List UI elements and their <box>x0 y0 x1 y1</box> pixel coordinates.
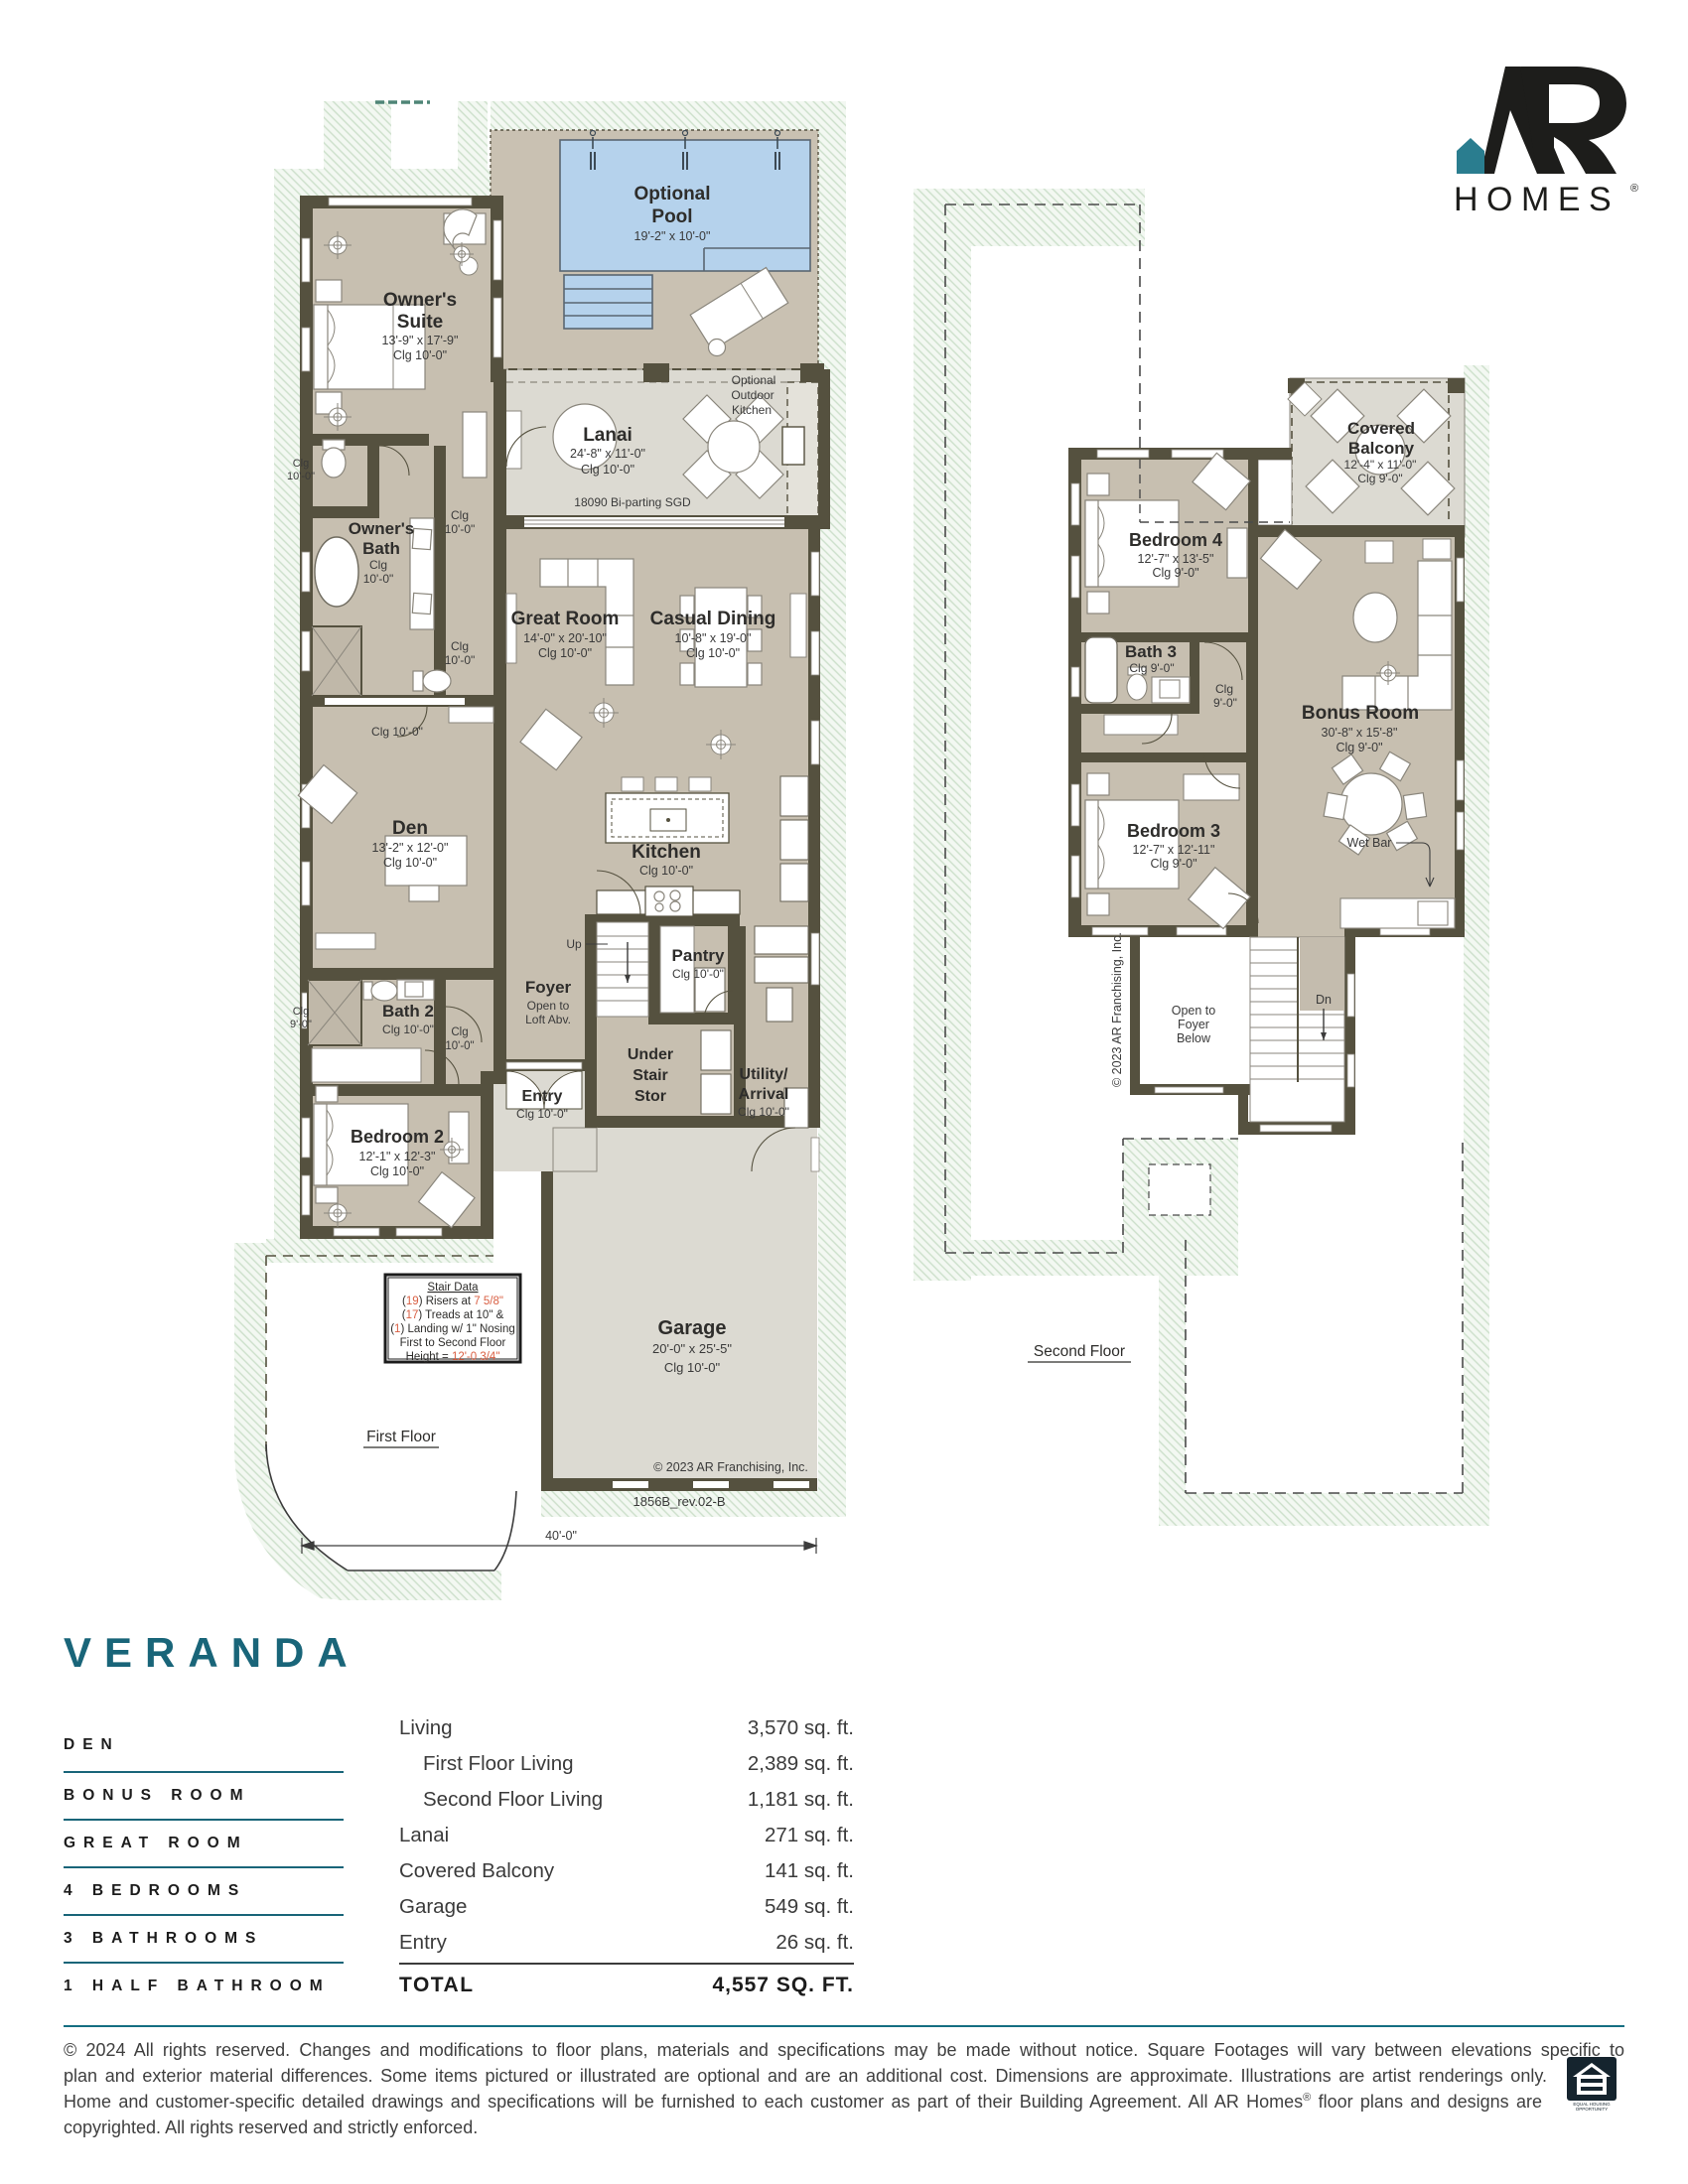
svg-text:Balcony: Balcony <box>1348 439 1415 458</box>
svg-text:Clg 10'-0": Clg 10'-0" <box>738 1105 789 1119</box>
svg-text:1856B_rev.02-B: 1856B_rev.02-B <box>633 1494 726 1509</box>
svg-text:(19) Risers at 7 5/8": (19) Risers at 7 5/8" <box>402 1296 503 1307</box>
svg-text:12'-4" x 11'-0": 12'-4" x 11'-0" <box>1344 458 1417 472</box>
svg-text:10'-0": 10'-0" <box>445 522 476 536</box>
svg-text:Clg: Clg <box>293 458 310 470</box>
svg-text:9'-0": 9'-0" <box>290 1019 312 1030</box>
svg-text:18090 Bi-parting SGD: 18090 Bi-parting SGD <box>574 495 691 509</box>
svg-text:Clg 10'-0": Clg 10'-0" <box>382 1023 434 1036</box>
svg-text:24'-8" x 11'-0": 24'-8" x 11'-0" <box>570 447 645 461</box>
svg-text:Bath 2: Bath 2 <box>382 1002 434 1021</box>
svg-text:30'-8" x 15'-8": 30'-8" x 15'-8" <box>1322 726 1398 740</box>
svg-text:10'-0": 10'-0" <box>363 572 394 586</box>
svg-text:Clg: Clg <box>451 639 469 653</box>
svg-text:Owner's: Owner's <box>349 519 414 538</box>
svg-text:Clg 9'-0": Clg 9'-0" <box>1336 741 1382 754</box>
svg-text:Clg: Clg <box>451 1026 468 1038</box>
svg-text:Clg 10'-0": Clg 10'-0" <box>393 348 447 362</box>
svg-text:Clg 10'-0": Clg 10'-0" <box>538 646 592 660</box>
svg-text:Clg 9'-0": Clg 9'-0" <box>1150 857 1196 871</box>
svg-text:Up: Up <box>566 937 582 951</box>
svg-text:Optional: Optional <box>732 373 776 387</box>
svg-text:13'-2" x 12'-0": 13'-2" x 12'-0" <box>372 841 449 855</box>
svg-text:12'-7" x 12'-11": 12'-7" x 12'-11" <box>1133 843 1215 857</box>
svg-text:Great Room: Great Room <box>511 609 620 629</box>
svg-text:Arrival: Arrival <box>739 1086 789 1103</box>
svg-text:10'-0": 10'-0" <box>445 653 476 667</box>
svg-text:10'-8" x 19'-0": 10'-8" x 19'-0" <box>675 631 752 645</box>
svg-text:© 2023 AR Franchising, Inc.: © 2023 AR Franchising, Inc. <box>653 1460 808 1474</box>
svg-text:10'-0": 10'-0" <box>445 1040 474 1052</box>
svg-text:Owner's: Owner's <box>383 290 457 311</box>
svg-text:Clg 10'-0": Clg 10'-0" <box>370 1164 424 1178</box>
svg-text:Clg 10'-0": Clg 10'-0" <box>383 856 437 870</box>
svg-text:19'-2" x 10'-0": 19'-2" x 10'-0" <box>634 229 711 243</box>
svg-text:Bath 3: Bath 3 <box>1125 642 1177 661</box>
svg-text:(1) Landing w/ 1" Nosing: (1) Landing w/ 1" Nosing <box>390 1323 515 1335</box>
svg-text:Casual Dining: Casual Dining <box>650 609 776 629</box>
svg-text:Open to: Open to <box>527 999 570 1013</box>
svg-text:Kitchen: Kitchen <box>632 842 701 863</box>
svg-text:Clg 10'-0": Clg 10'-0" <box>516 1107 568 1121</box>
svg-text:Clg 10'-0": Clg 10'-0" <box>371 725 423 739</box>
svg-text:Optional: Optional <box>633 184 710 205</box>
svg-text:Under: Under <box>628 1046 673 1063</box>
svg-text:40'-0": 40'-0" <box>545 1529 577 1543</box>
svg-text:Stair Data: Stair Data <box>427 1282 479 1294</box>
svg-text:Outdoor: Outdoor <box>731 388 774 402</box>
svg-text:Bedroom 2: Bedroom 2 <box>351 1127 444 1147</box>
svg-text:14'-0" x 20'-10": 14'-0" x 20'-10" <box>523 631 607 645</box>
svg-text:Loft Abv.: Loft Abv. <box>525 1013 571 1026</box>
svg-text:Clg 10'-0": Clg 10'-0" <box>639 864 693 878</box>
svg-text:Kitchen: Kitchen <box>732 403 772 417</box>
svg-text:Below: Below <box>1177 1031 1211 1045</box>
svg-text:Clg 9'-0": Clg 9'-0" <box>1129 661 1174 675</box>
svg-text:(17) Treads at 10" &: (17) Treads at 10" & <box>402 1309 504 1321</box>
svg-text:Stor: Stor <box>634 1088 666 1105</box>
svg-text:Entry: Entry <box>522 1088 563 1105</box>
svg-text:Clg: Clg <box>293 1006 310 1018</box>
svg-text:Clg 9'-0": Clg 9'-0" <box>1152 566 1198 580</box>
svg-text:Pool: Pool <box>651 206 692 227</box>
svg-text:Bedroom 3: Bedroom 3 <box>1127 821 1220 841</box>
svg-text:Clg 10'-0": Clg 10'-0" <box>664 1360 721 1375</box>
svg-text:Dn: Dn <box>1316 993 1332 1007</box>
svg-text:First Floor: First Floor <box>366 1429 436 1445</box>
svg-text:Covered: Covered <box>1347 419 1415 438</box>
svg-text:®: ® <box>1630 183 1638 195</box>
svg-text:Garage: Garage <box>658 1317 727 1339</box>
svg-text:Wet Bar: Wet Bar <box>1347 836 1392 850</box>
svg-text:© 2023 AR Franchising, Inc.: © 2023 AR Franchising, Inc. <box>1110 932 1124 1087</box>
svg-text:Clg 10'-0": Clg 10'-0" <box>672 967 724 981</box>
svg-text:Clg: Clg <box>451 508 469 522</box>
svg-text:Foyer: Foyer <box>525 978 572 997</box>
svg-text:Lanai: Lanai <box>583 425 633 446</box>
svg-text:Clg 10'-0": Clg 10'-0" <box>686 646 740 660</box>
svg-text:Stair: Stair <box>633 1067 668 1084</box>
svg-text:HOMES: HOMES <box>1454 181 1619 218</box>
svg-text:10'-0": 10'-0" <box>287 471 315 482</box>
svg-text:Clg 10'-0": Clg 10'-0" <box>581 463 634 477</box>
svg-text:Utility/: Utility/ <box>740 1066 788 1083</box>
svg-text:9'-0": 9'-0" <box>1213 696 1237 710</box>
svg-text:Clg 9'-0": Clg 9'-0" <box>1357 472 1402 485</box>
svg-text:Foyer: Foyer <box>1178 1018 1209 1031</box>
svg-text:Den: Den <box>392 818 428 839</box>
svg-text:20'-0" x 25'-5": 20'-0" x 25'-5" <box>652 1341 732 1356</box>
svg-text:Clg: Clg <box>369 558 387 572</box>
svg-text:Height = 12'-0 3/4": Height = 12'-0 3/4" <box>406 1351 500 1363</box>
svg-text:12'-7" x 13'-5": 12'-7" x 13'-5" <box>1138 552 1214 566</box>
svg-text:Bonus Room: Bonus Room <box>1302 703 1419 724</box>
svg-text:Suite: Suite <box>397 312 443 333</box>
svg-text:Clg: Clg <box>1215 682 1233 696</box>
svg-text:13'-9" x 17'-9": 13'-9" x 17'-9" <box>382 334 459 347</box>
svg-text:Pantry: Pantry <box>672 946 725 965</box>
svg-text:OPPORTUNITY: OPPORTUNITY <box>1576 2107 1608 2112</box>
svg-text:Bath: Bath <box>362 539 400 558</box>
svg-text:Bedroom 4: Bedroom 4 <box>1129 530 1222 550</box>
svg-text:12'-1" x 12'-3": 12'-1" x 12'-3" <box>359 1150 436 1163</box>
svg-text:First to Second Floor: First to Second Floor <box>400 1337 506 1349</box>
svg-text:Second Floor: Second Floor <box>1034 1343 1125 1360</box>
svg-text:Open to: Open to <box>1172 1004 1216 1018</box>
